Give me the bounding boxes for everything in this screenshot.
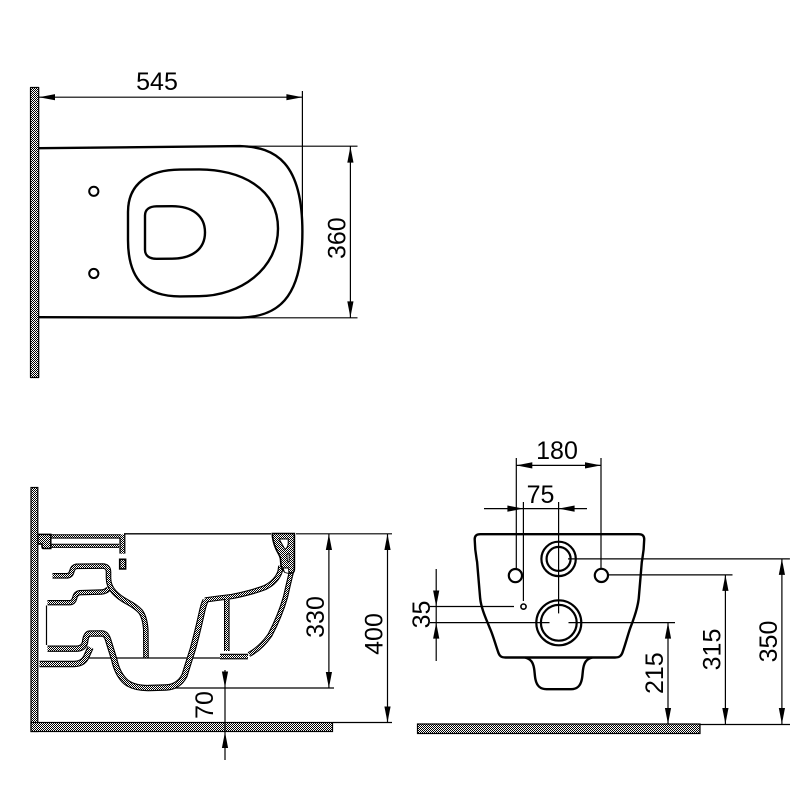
svg-text:545: 545 bbox=[136, 68, 178, 96]
svg-text:70: 70 bbox=[191, 691, 219, 719]
svg-text:400: 400 bbox=[361, 613, 389, 655]
svg-text:180: 180 bbox=[536, 437, 578, 465]
svg-text:360: 360 bbox=[324, 217, 352, 259]
svg-text:330: 330 bbox=[302, 596, 330, 638]
svg-text:215: 215 bbox=[641, 652, 669, 694]
svg-text:350: 350 bbox=[755, 621, 783, 663]
svg-text:315: 315 bbox=[698, 629, 726, 671]
svg-text:75: 75 bbox=[527, 481, 555, 509]
svg-text:35: 35 bbox=[408, 601, 436, 629]
